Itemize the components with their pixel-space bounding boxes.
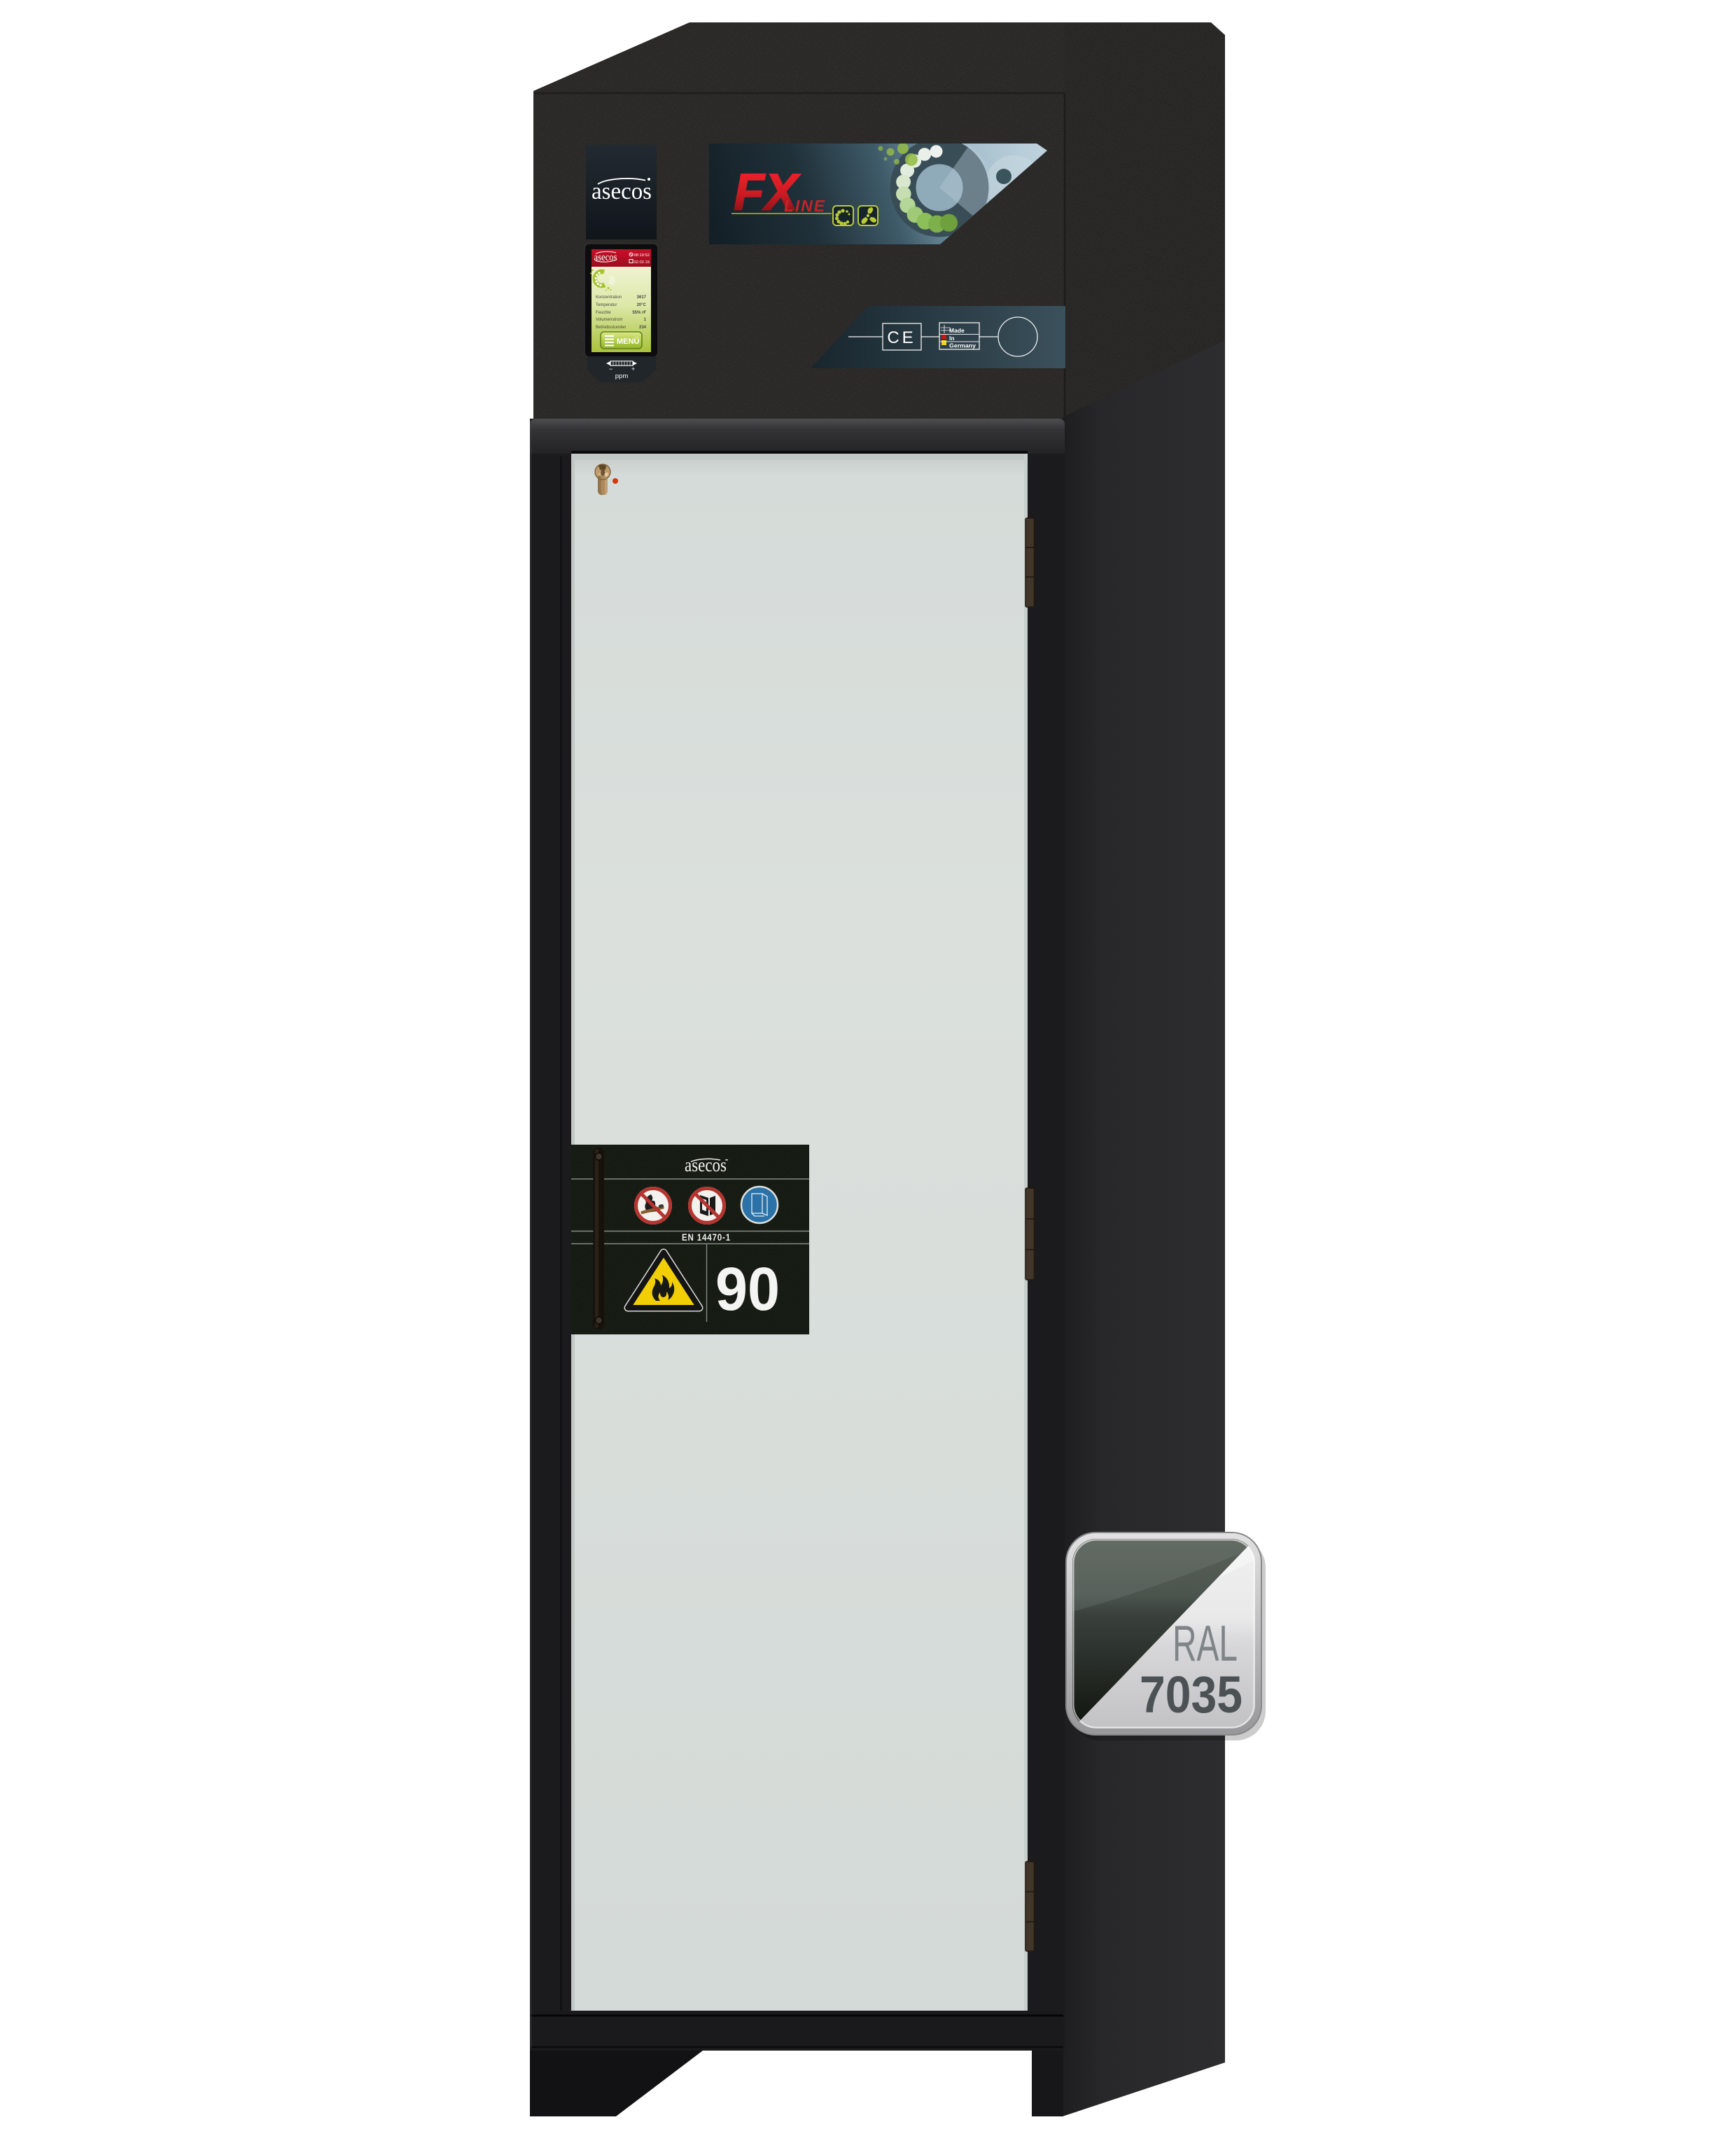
svg-text:3617: 3617 [637, 295, 647, 300]
svg-text:08:10:52: 08:10:52 [633, 253, 650, 258]
svg-text:−: − [609, 365, 612, 372]
svg-text:90: 90 [715, 1255, 780, 1323]
svg-text:Konzentration: Konzentration [596, 295, 622, 300]
svg-text:02.02.15: 02.02.15 [633, 260, 650, 265]
svg-text:234: 234 [639, 326, 647, 330]
svg-text:Feuchte: Feuchte [596, 311, 611, 315]
svg-text:LINE: LINE [784, 197, 826, 215]
svg-text:In: In [949, 335, 955, 342]
svg-text:Germany: Germany [949, 342, 976, 349]
svg-text:EN 14470-1: EN 14470-1 [682, 1231, 731, 1243]
svg-text:CE: CE [887, 328, 916, 347]
svg-text:MENÜ: MENÜ [617, 337, 639, 346]
svg-text:+: + [631, 365, 635, 372]
svg-text:Temperatur: Temperatur [596, 303, 617, 307]
svg-text:55% rF: 55% rF [632, 311, 646, 315]
svg-text:Volumenstrom: Volumenstrom [596, 318, 622, 322]
svg-text:20°C: 20°C [637, 303, 647, 307]
svg-text:Made: Made [949, 327, 965, 334]
svg-text:ppm: ppm [615, 372, 629, 380]
svg-text:RAL: RAL [1172, 1616, 1238, 1672]
svg-text:7035: 7035 [1140, 1666, 1242, 1724]
svg-text:Betriebsstunden: Betriebsstunden [596, 326, 626, 330]
svg-text:asecos: asecos [685, 1154, 727, 1175]
